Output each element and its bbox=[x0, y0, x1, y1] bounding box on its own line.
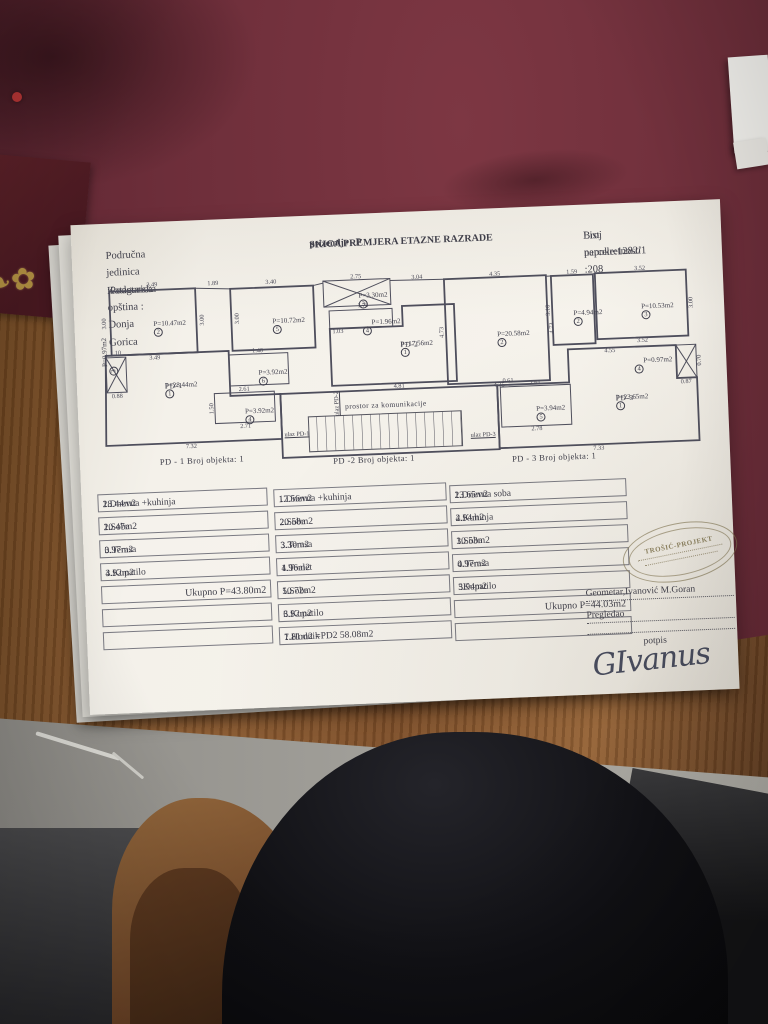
corridor-label: prostor za komunikacije bbox=[345, 399, 427, 411]
dimension-label: 2.61 bbox=[529, 379, 540, 386]
dimension-label: 3.40 bbox=[265, 279, 276, 286]
title-subline: prizemlje - P bbox=[309, 236, 362, 252]
dimension-label: 0.88 bbox=[112, 393, 123, 400]
dimension-label: 3.04 bbox=[411, 274, 422, 281]
document-title: SKICA PREMJERA ETAZNE RAZRADE prizemlje … bbox=[309, 229, 529, 238]
plan-unit-caption: PD -2 Broj objekta: 1 bbox=[333, 453, 415, 466]
dimension-label: 2.75 bbox=[350, 273, 361, 280]
dimension-label: 3.49 bbox=[149, 354, 160, 361]
dimension-label: 3.49 bbox=[146, 281, 157, 288]
entrance-label: ulaz PD-3 bbox=[471, 431, 496, 439]
handwritten-signature: GIvanus bbox=[591, 636, 712, 684]
table-row: 1.Dnevna +kuhinja28.44m2 bbox=[97, 488, 268, 513]
dimension-label: 0.70 bbox=[696, 354, 703, 365]
dimension-label: 3.52 bbox=[637, 337, 648, 344]
table-row: 7.Hodnik1.81m2 =PD2 58.08m2 bbox=[279, 620, 453, 645]
entrance-label: ulaz PD-2 bbox=[333, 391, 341, 416]
dimension-label: 3.00 bbox=[234, 313, 241, 324]
table-row: 2.Soba10.47m2 bbox=[98, 511, 269, 536]
dimension-label: 3.10 bbox=[545, 304, 552, 315]
dimension-label: 1.10 bbox=[110, 350, 121, 357]
table-empty-row bbox=[102, 602, 273, 627]
dimension-label: 4.35 bbox=[489, 271, 500, 278]
table-row: 4.Terasa0.97m2 bbox=[452, 547, 630, 572]
dimension-label: 1.03 bbox=[332, 328, 343, 335]
plan-unit-caption: PD - 3 Broj objekta: 1 bbox=[512, 450, 596, 463]
dimension-label: 4.81 bbox=[394, 382, 405, 389]
table-row: 4.Toalet1.96m2 bbox=[276, 551, 450, 576]
floor-plan: 3.493.003.493.001.893.403.002.751.753.04… bbox=[95, 262, 704, 484]
table-row: 4.Kupatilo3.92m2 bbox=[100, 557, 271, 582]
dimension-label: 0.61 bbox=[502, 377, 513, 384]
table-row: 1.Dnevna +kuhinja17.56m2 bbox=[273, 482, 447, 507]
dimension-label: 7.32 bbox=[186, 443, 197, 450]
red-dot bbox=[12, 92, 22, 102]
paper-scrap-top-right bbox=[733, 138, 768, 170]
table-row: 2.Soba20.58m2 bbox=[274, 505, 448, 530]
dimension-label: 3.00 bbox=[101, 318, 108, 329]
area-table-pd1: 1.Dnevna +kuhinja28.44m22.Soba10.47m23.T… bbox=[97, 488, 273, 656]
dimension-label: 1.40 bbox=[252, 347, 263, 354]
document-sheet: Područna jedinica :Podgorica Katastarska… bbox=[70, 199, 739, 715]
table-row: 2.Kuhinja4.94m2 bbox=[450, 501, 628, 526]
dimension-label: 3.00 bbox=[687, 297, 694, 308]
dimension-label: 1.50 bbox=[208, 403, 215, 414]
area-table-pd2: 1.Dnevna +kuhinja17.56m22.Soba20.58m23.T… bbox=[273, 482, 452, 650]
entrance-label: ulaz PD-1 bbox=[284, 430, 309, 438]
table-row: 3.Terasa3.30m2 bbox=[275, 528, 449, 553]
table-total-row: Ukupno P=43.80m2 bbox=[101, 579, 272, 604]
photo-scene: ❧✿ Područna jedinica :Podgorica Katastar… bbox=[0, 0, 768, 1024]
dimension-label: 3.52 bbox=[634, 265, 645, 272]
table-row: 1.Dnevna soba23.65m2 bbox=[449, 478, 627, 503]
table-row: 3.Terasa0.97m2 bbox=[99, 534, 270, 559]
dimension-label: 4.73 bbox=[438, 327, 445, 338]
header-cadastral-unit: Područna jedinica :Podgorica Katastarska… bbox=[105, 248, 106, 283]
gold-ornament: ❧✿ bbox=[0, 260, 39, 302]
dimension-label: 4.55 bbox=[604, 347, 615, 354]
dimension-label: 1.89 bbox=[207, 280, 218, 287]
dimension-label: 0.87 bbox=[681, 378, 692, 385]
table-row: 5.Soba10.72m2 bbox=[277, 574, 451, 599]
dimension-label: 2.61 bbox=[239, 386, 250, 393]
round-stamp: TROŠIĆ-PROJEKT bbox=[617, 512, 742, 592]
dimension-label: 4.73 bbox=[548, 322, 555, 333]
header-line: Broj parcele:1282/1 bbox=[583, 226, 647, 262]
dimension-label: 1.59 bbox=[566, 268, 577, 275]
table-row: 6.Kupatilo3.92m2 bbox=[278, 597, 452, 622]
floor-plan-labels: 3.493.003.493.001.893.403.002.751.753.04… bbox=[95, 262, 704, 484]
table-row: 3.Soba10.53m2 bbox=[451, 524, 629, 549]
dimension-label: 2.78 bbox=[531, 425, 542, 432]
plan-unit-caption: PD - 1 Broj objekta: 1 bbox=[160, 453, 244, 466]
dimension-label: 3.00 bbox=[199, 314, 206, 325]
table-empty-row bbox=[103, 625, 274, 650]
